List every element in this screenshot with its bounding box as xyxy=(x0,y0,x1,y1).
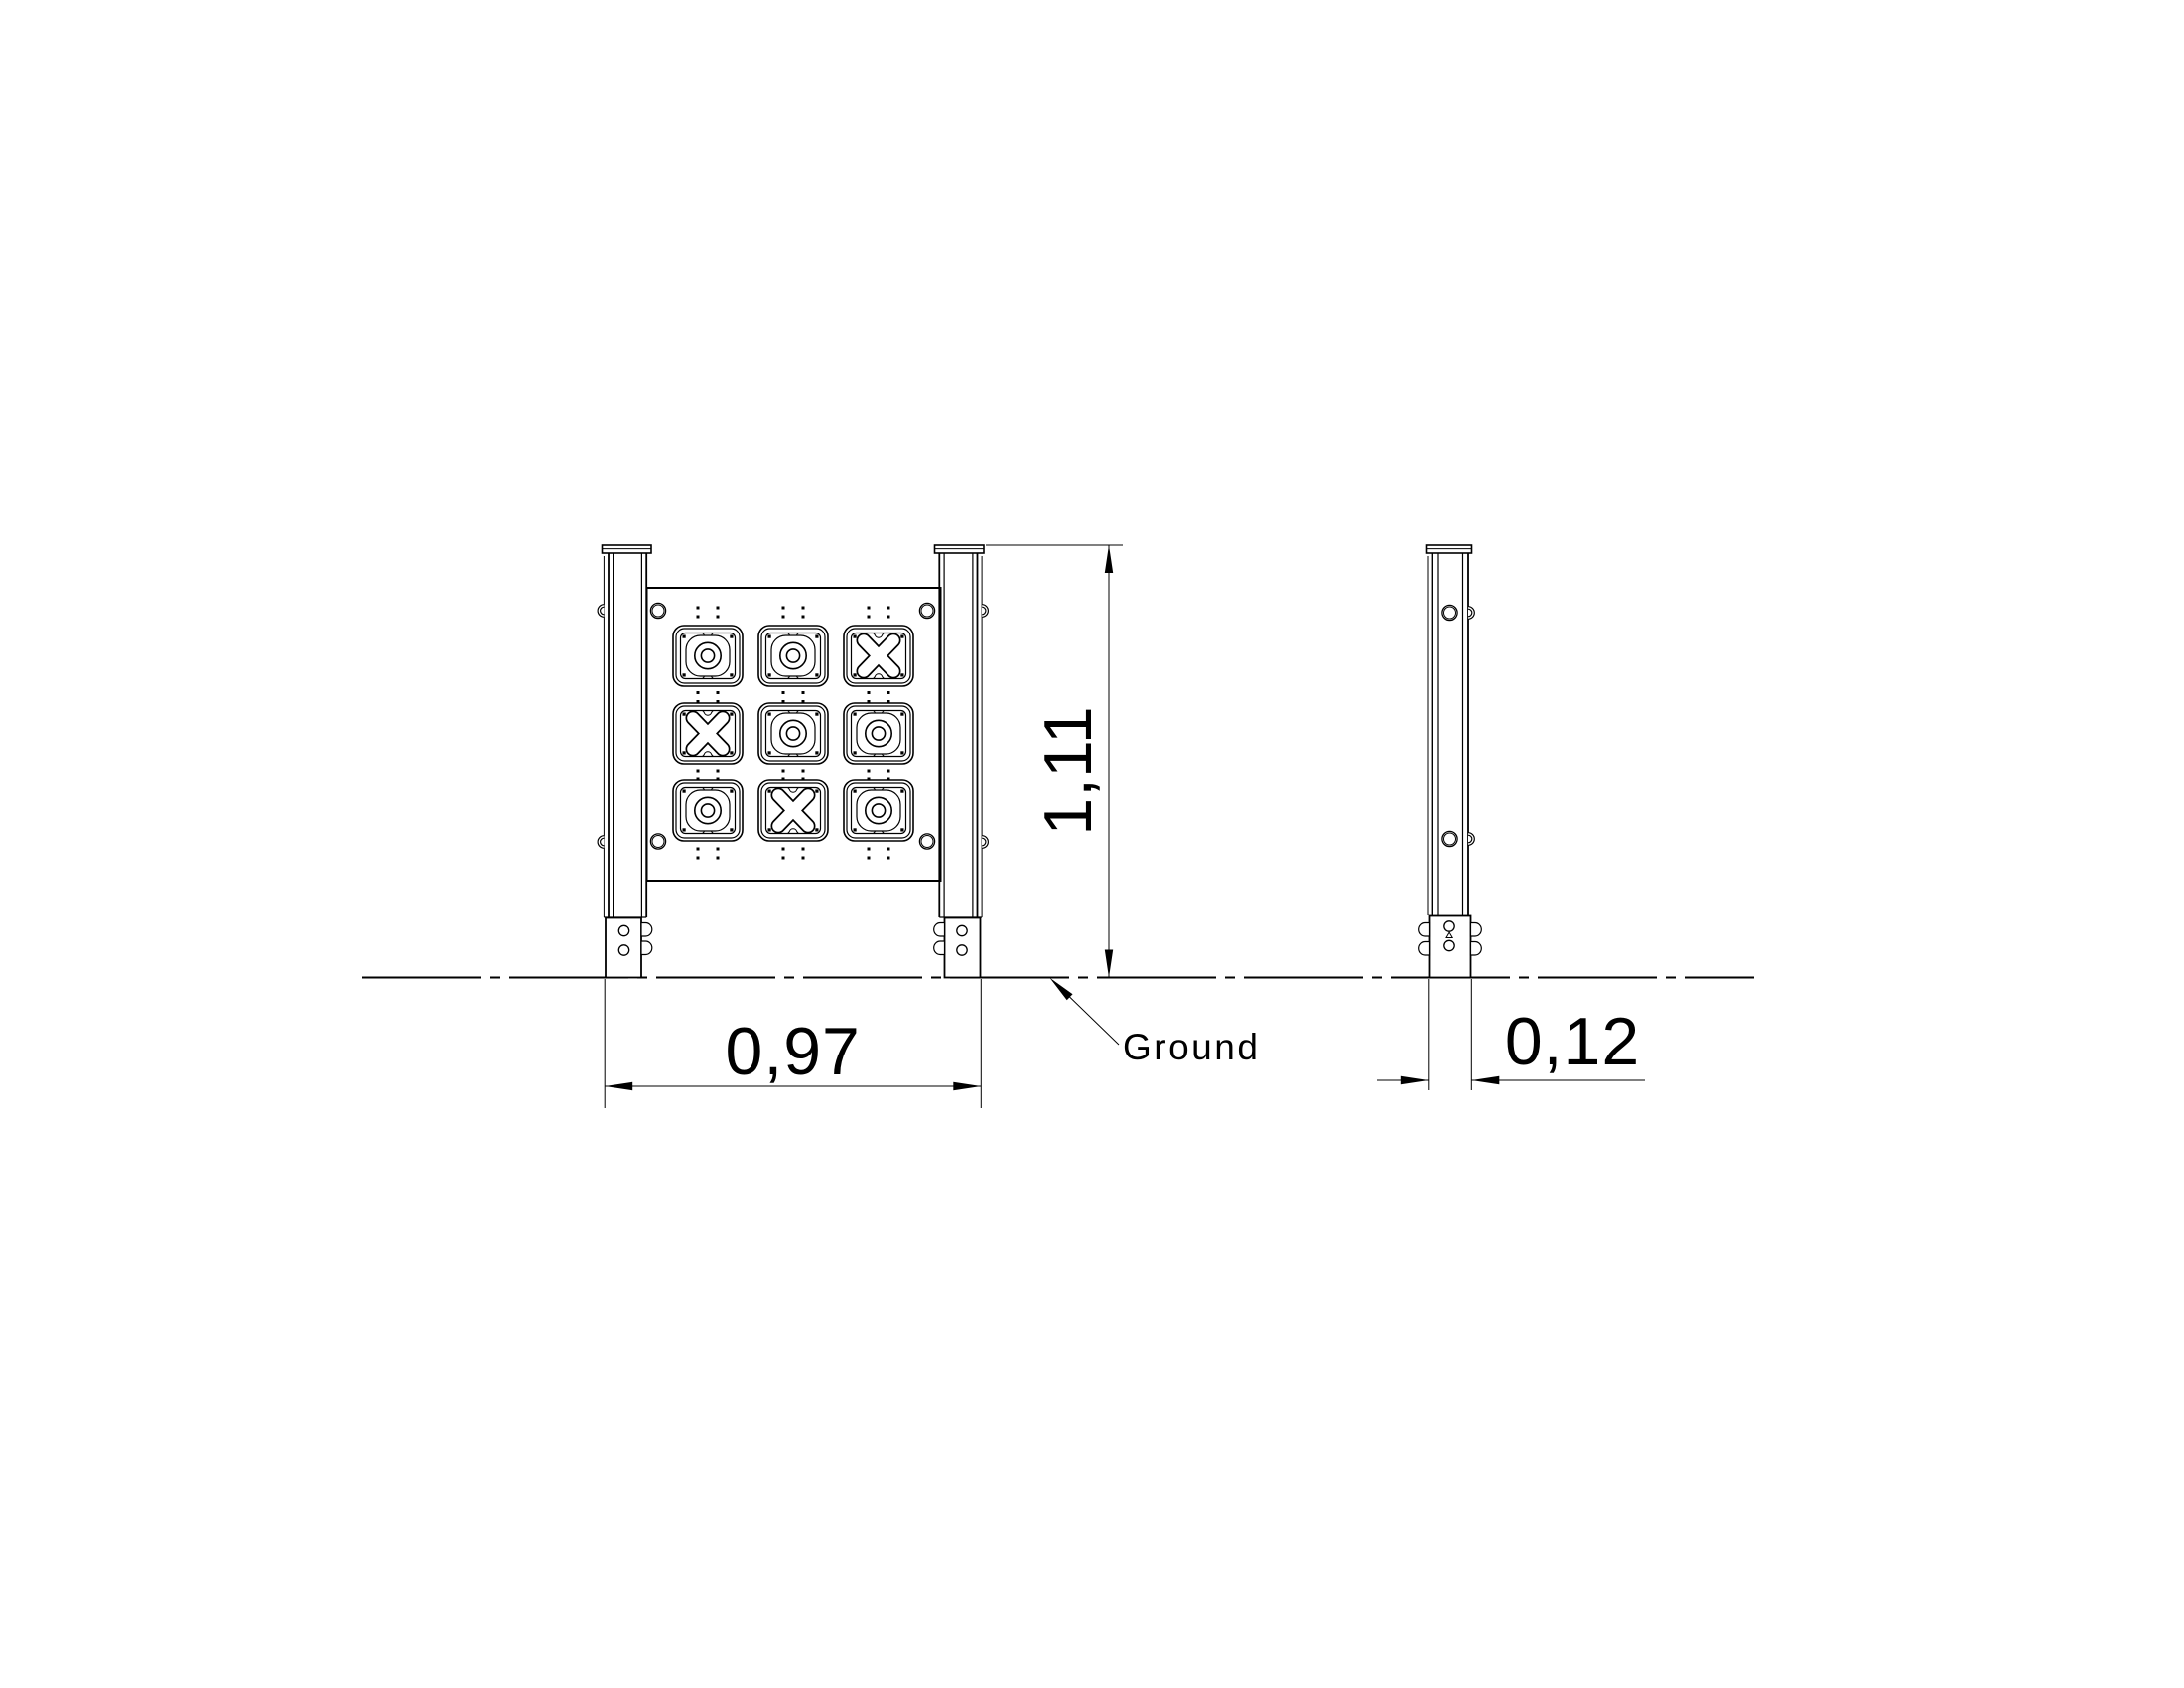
panel-corner-hole xyxy=(650,603,665,618)
bolt-bump xyxy=(1468,833,1474,846)
ground-anchor xyxy=(1419,916,1482,978)
tile-r3c2 xyxy=(758,780,828,841)
bolt-hole xyxy=(1442,831,1457,846)
bolt-bump xyxy=(598,605,604,618)
tile-r3c1 xyxy=(673,780,743,841)
tile-r2c2 xyxy=(758,703,828,764)
o-icon xyxy=(771,635,815,676)
tile-r2c1 xyxy=(673,703,743,764)
front-view xyxy=(598,545,988,978)
o-icon xyxy=(771,713,815,754)
dimension-width: 0,97 xyxy=(605,979,981,1108)
bolt-bump xyxy=(1468,607,1474,620)
side-view xyxy=(1419,545,1482,978)
dimension-arrow xyxy=(1471,1076,1499,1084)
tile-r1c1 xyxy=(673,626,743,686)
panel-corner-hole xyxy=(650,834,665,849)
ground-callout: Ground xyxy=(1047,975,1261,1067)
dimension-arrow xyxy=(1105,950,1113,978)
bolt-bump xyxy=(598,836,604,849)
tile-r1c2 xyxy=(758,626,828,686)
leader-arrow xyxy=(1047,975,1073,1000)
dimension-arrow xyxy=(1401,1076,1429,1084)
left-post xyxy=(598,545,652,978)
width-dimension-label: 0,97 xyxy=(726,1014,861,1089)
orthographic-drawing: 0,97 1,11 0,12 Ground xyxy=(0,0,2184,1688)
tile-grid xyxy=(673,626,913,841)
right-post xyxy=(934,545,989,978)
bolt-hole xyxy=(1442,605,1457,620)
dimension-arrow xyxy=(953,1082,981,1090)
panel-corner-hole xyxy=(919,834,934,849)
o-icon xyxy=(857,713,900,754)
o-icon xyxy=(857,790,900,831)
height-dimension-label: 1,11 xyxy=(1030,705,1106,835)
dimension-height: 1,11 xyxy=(986,545,1123,978)
tile-r1c3 xyxy=(844,626,913,686)
technical-drawing-page: 0,97 1,11 0,12 Ground xyxy=(0,0,2184,1688)
game-panel xyxy=(647,588,941,881)
dimension-arrow xyxy=(1105,545,1113,573)
dimension-depth: 0,12 xyxy=(1377,979,1645,1090)
ground-anchor xyxy=(606,918,652,978)
o-icon xyxy=(686,635,730,676)
tile-r2c3 xyxy=(844,703,913,764)
dimension-arrow xyxy=(605,1082,632,1090)
tile-r3c3 xyxy=(844,780,913,841)
panel-corner-hole xyxy=(919,603,934,618)
o-icon xyxy=(686,790,730,831)
depth-dimension-label: 0,12 xyxy=(1505,1004,1640,1079)
ground-label: Ground xyxy=(1123,1027,1260,1067)
